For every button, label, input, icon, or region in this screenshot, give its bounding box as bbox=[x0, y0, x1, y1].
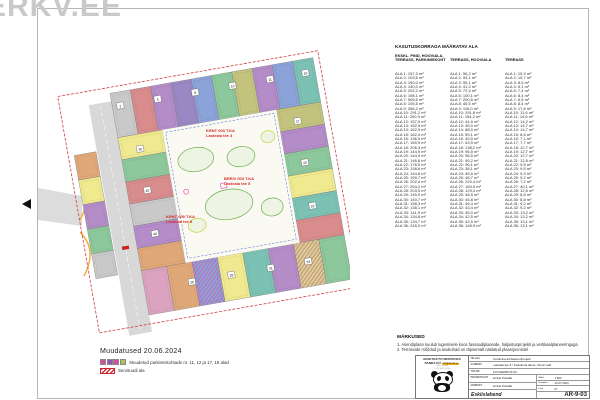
notes-title: MÄRKUSED bbox=[397, 335, 589, 340]
area-row: ALA 36: 245,0 m² bbox=[395, 224, 450, 228]
area-table: KASUTUSKORRAGA MÄÄRATAV ALA EKSKL. PIND,… bbox=[395, 44, 590, 228]
svg-text:Lasteaia tee 5: Lasteaia tee 5 bbox=[224, 181, 251, 186]
site-plan-svg: 25810111617202226283134364046 KRNT 003 T… bbox=[38, 28, 350, 340]
legend-label: Servituudi ala bbox=[118, 368, 145, 373]
svg-text:Lasteaia tee 8: Lasteaia tee 8 bbox=[166, 219, 193, 224]
hatch-swatch bbox=[100, 368, 115, 375]
area-table-title: KASUTUSKORRAGA MÄÄRATAV ALA bbox=[395, 44, 590, 49]
area-table-columns: EKSKL. PIND, HOOVIALA,TERRASS, PARKIMISK… bbox=[395, 54, 590, 228]
legend-item: Muudetud parkimiskohtade nr. 11, 12 ja 1… bbox=[100, 359, 229, 365]
company-address-line2: +372 5555 5555 bbox=[416, 368, 468, 371]
company-logo: ARHITEKTUURIBÜROO PANDA OÜ info@panda.ee… bbox=[416, 356, 469, 398]
panda-logo bbox=[430, 371, 454, 392]
field-architect: Arhitekt Andrei Poluäär bbox=[469, 383, 536, 390]
legend-item: Servituudi ala bbox=[100, 368, 229, 375]
notes-items: 1. Asendiplaan kuulub lugemisele koos fa… bbox=[397, 342, 589, 353]
color-swatch bbox=[107, 359, 113, 365]
color-swatch bbox=[100, 359, 106, 365]
legend-label: Muudetud parkimiskohtade nr. 11, 12 ja 1… bbox=[129, 360, 229, 365]
area-table-column-3: TERRASSALA 1: 15,9 m²ALA 2: 15,7 m²ALA 3… bbox=[505, 54, 560, 228]
changes-legend: Muudatused 20.06.2024 Muudetud parkimisk… bbox=[100, 348, 229, 377]
color-swatch bbox=[113, 359, 119, 365]
svg-text:Lasteaia tee 3: Lasteaia tee 3 bbox=[206, 133, 233, 138]
notes: MÄRKUSED 1. Asendiplaan kuulub lugemisel… bbox=[397, 335, 589, 353]
area-row: ALA 36: 149,9 m² bbox=[450, 224, 505, 228]
field-project-manager: Projektijuht Andrei Poluäär bbox=[469, 375, 536, 382]
watermark: ERKV.EE bbox=[0, 0, 122, 24]
building-block: 25810111617202226283134364046 bbox=[58, 51, 350, 340]
area-row: ALA 36: 13,1 m² bbox=[505, 224, 560, 228]
title-block: ARHITEKTUURIBÜROO PANDA OÜ info@panda.ee… bbox=[415, 355, 590, 399]
sheet-code: AR-9-03 bbox=[537, 392, 589, 398]
changes-items: Muudetud parkimiskohtade nr. 11, 12 ja 1… bbox=[100, 359, 229, 374]
sheet-title: Eskiislahend bbox=[469, 390, 536, 398]
area-table-column-2: TERRASS, HOOVIALAALA 1: 56,2 m²ALA 2: 53… bbox=[450, 54, 505, 228]
left-arrow-marker bbox=[22, 199, 31, 209]
note-item: 2. Terrasside mõõdud ja asukohad on täps… bbox=[397, 347, 589, 352]
title-block-people: Projektijuht Andrei Poluäär Arhitekt And… bbox=[469, 375, 537, 398]
color-swatch bbox=[120, 359, 126, 365]
drawing-sheet: ERKV.EE bbox=[0, 0, 600, 400]
title-block-meta: Mõõt 1:500 Kuupäev 10.07.2024 Leht 07 AR… bbox=[537, 375, 589, 398]
changes-title: Muudatused 20.06.2024 bbox=[100, 348, 229, 355]
area-table-column-1: EKSKL. PIND, HOOVIALA,TERRASS, PARKIMISK… bbox=[395, 54, 450, 228]
title-block-fields: Tellija Kodulinna arhitektuuriprojekt Aa… bbox=[469, 356, 589, 398]
